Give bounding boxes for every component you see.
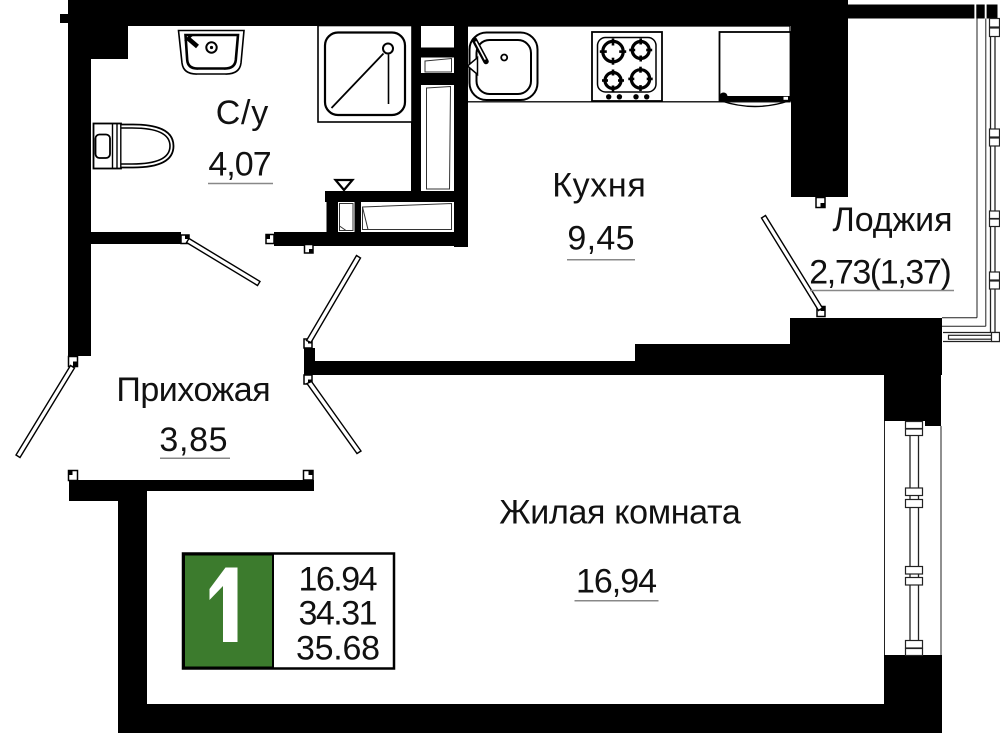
svg-text:3,85: 3,85 bbox=[159, 421, 227, 459]
svg-text:16,94: 16,94 bbox=[576, 563, 657, 601]
svg-text:Кухня: Кухня bbox=[552, 167, 646, 205]
svg-text:34.31: 34.31 bbox=[299, 595, 378, 633]
svg-text:С/у: С/у bbox=[216, 94, 269, 132]
svg-text:4,07: 4,07 bbox=[208, 146, 271, 184]
svg-text:16.94: 16.94 bbox=[299, 561, 378, 599]
svg-text:Жилая комната: Жилая комната bbox=[499, 494, 741, 532]
svg-text:Лоджия: Лоджия bbox=[833, 201, 953, 239]
svg-text:9,45: 9,45 bbox=[567, 220, 634, 258]
svg-text:2,73(1,37): 2,73(1,37) bbox=[809, 254, 952, 292]
svg-text:Прихожая: Прихожая bbox=[116, 371, 270, 409]
svg-text:35.68: 35.68 bbox=[296, 630, 380, 668]
